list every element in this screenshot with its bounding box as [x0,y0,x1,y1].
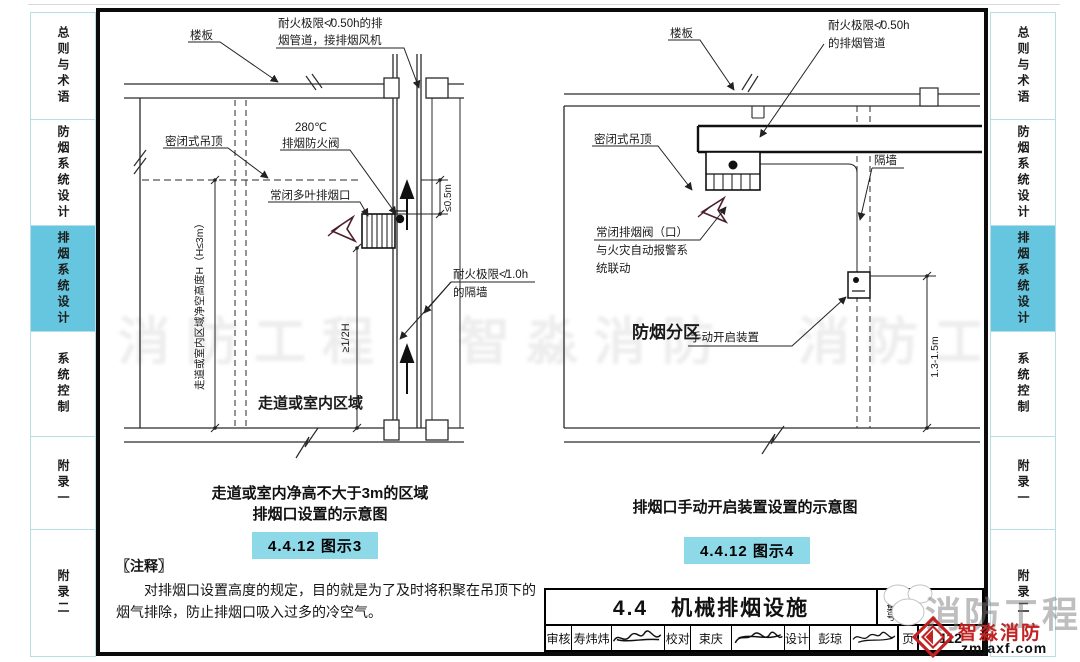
label-corridor-area: 走道或室内区域 [258,394,363,412]
manual-opening-device [848,272,870,298]
dimension-lines [870,272,936,432]
atlas-number-label: 图集号 [876,590,902,624]
figure-badge-4: 4.4.12 图示4 [684,537,810,564]
sidebar-item-system-control[interactable]: 系统控制 [30,332,96,437]
sidebar-item-label: 附录二 [57,569,69,617]
sidebar-item-label: 排烟系统设计 [57,231,69,327]
designer-signature [851,626,898,650]
label-floor-slab: 楼板 [670,26,693,40]
label-duct-note-1: 耐火极限≮0.50h的排 [278,16,383,30]
sidebar-item-label: 防烟系统设计 [57,125,69,221]
dim-half-height: ≥1/2H [340,323,352,352]
title-block: 4.4 机械排烟设施 图集号 审核 寿炜炜 校对 束庆 设计 彭琼 页 112 [544,588,984,652]
diagram-manual-device: 楼板 耐火极限≮0.50h 的排烟管道 密闭式吊顶 常闭排烟阀（口） 与火灾自动… [552,14,984,484]
watermark-site-url: zmjaxf.com [961,640,1047,656]
diagram-corridor-vent: 楼板 耐火极限≮0.50h的排 烟管道，接排烟风机 密闭式吊顶 280℃ 排烟防… [110,14,540,484]
caption-left-line1: 走道或室内净高不大于3m的区域 [140,483,500,504]
label-sealed-ceiling: 密闭式吊顶 [594,132,652,146]
sidebar-item-label: 附录一 [1017,459,1029,507]
sidebar-item-label: 总则与术语 [57,26,69,106]
dim-clear-height: 走道或室内区域净空高度H（H≤3m） [193,218,206,390]
label-partition-wall: 隔墙 [874,153,897,167]
sidebar-item-label: 附录二 [1017,569,1029,617]
caption-left-line2: 排烟口设置的示意图 [140,504,500,525]
sidebar-item-label: 总则与术语 [1017,26,1029,106]
sidebar-item-smoke-exhaust[interactable]: 排烟系统设计 [30,226,96,332]
checker-name: 束庆 [691,626,731,650]
notes-body: 对排烟口设置高度的规定，目的就是为了及时将积聚在吊顶下的烟气排除，防止排烟口吸入… [116,579,546,624]
section-title: 4.4 机械排烟设施 [546,590,876,624]
smoke-vent-assembly [362,211,406,248]
control-wire [760,164,857,272]
structure-lines [124,54,464,442]
sidebar-right-item-system-control[interactable]: 系统控制 [990,332,1056,437]
smoke-valve-assembly [706,152,760,190]
sidebar-item-appendix-1[interactable]: 附录一 [30,437,96,530]
sidebar-item-general[interactable]: 总则与术语 [30,12,96,120]
signature-scribble [851,629,897,647]
label-duct-note-2: 的排烟管道 [828,36,886,50]
sidebar-right: 总则与术语 防烟系统设计 排烟系统设计 系统控制 附录一 附录二 [990,12,1056,657]
smoke-flow-symbol [698,198,726,222]
notes-header: 〖注释〗 [116,556,546,576]
sidebar-right-item-smoke-proof[interactable]: 防烟系统设计 [990,120,1056,226]
title-block-bottom-row: 审核 寿炜炜 校对 束庆 设计 彭琼 页 112 [546,626,982,650]
label-valve-note-3: 统联动 [596,261,631,275]
label-duct-note-1: 耐火极限≮0.50h [828,18,910,32]
dim-device-height: 1.3-1.5m [929,336,941,378]
page-label: 页 [898,626,917,650]
label-valve-note-2: 与火灾自动报警系 [596,243,688,257]
dimension-lines [211,176,448,432]
caption-right: 排烟口手动开启装置设置的示意图 [560,497,930,518]
atlas-number-label-text: 图集号 [886,594,895,621]
label-floor-slab: 楼板 [190,28,213,42]
valve-actuator-symbol [729,161,738,170]
reviewer-signature [612,626,665,650]
atlas-page: 总则与术语 防烟系统设计 排烟系统设计 系统控制 附录一 附录二 总则与术语 防… [0,0,1080,662]
designer-label: 设计 [785,626,811,650]
smoke-flow-symbol [328,217,355,241]
label-valve-note-1: 常闭排烟阀（口） [596,225,688,239]
dim-top-offset: ≤0.5m [443,184,454,212]
sidebar-right-item-appendix-1[interactable]: 附录一 [990,437,1056,530]
label-multi-leaf-vent: 常闭多叶排烟口 [270,188,351,202]
sidebar-item-appendix-2[interactable]: 附录二 [30,530,96,657]
label-fire-damper: 排烟防火阀 [282,136,340,150]
signature-scribble [612,629,664,647]
sidebar-item-label: 附录一 [57,459,69,507]
partition-wall-dashed [857,106,870,428]
signature-scribble [732,629,784,647]
figure-badge-3: 4.4.12 图示3 [252,532,378,559]
sidebar-item-label: 排烟系统设计 [1017,231,1029,327]
label-wall-note-1: 耐火极限≮1.0h [453,267,528,281]
fire-damper-symbol [396,215,404,223]
sidebar-left: 总则与术语 防烟系统设计 排烟系统设计 系统控制 附录一 附录二 [30,12,96,657]
notes-section: 〖注释〗 对排烟口设置高度的规定，目的就是为了及时将积聚在吊顶下的烟气排除，防止… [116,556,546,624]
caption-right-line1: 排烟口手动开启装置设置的示意图 [560,497,930,518]
beam-section [920,88,938,106]
label-280c: 280℃ [295,122,327,134]
sidebar-item-label: 系统控制 [57,352,69,416]
label-duct-note-2: 烟管道，接排烟风机 [278,33,382,47]
reviewer-name: 寿炜炜 [572,626,612,650]
sidebar-item-label: 系统控制 [1017,352,1029,416]
sidebar-right-item-smoke-exhaust[interactable]: 排烟系统设计 [990,226,1056,332]
page-edge-line [28,4,1060,5]
sidebar-item-smoke-proof[interactable]: 防烟系统设计 [30,120,96,226]
label-sealed-ceiling: 密闭式吊顶 [165,134,223,148]
sidebar-right-item-general[interactable]: 总则与术语 [990,12,1056,120]
checker-label: 校对 [665,626,691,650]
label-wall-note-2: 的隔墙 [453,285,488,299]
sidebar-item-label: 防烟系统设计 [1017,125,1029,221]
horizontal-duct [698,125,982,152]
caption-left: 走道或室内净高不大于3m的区域 排烟口设置的示意图 [140,483,500,525]
title-block-top-row: 4.4 机械排烟设施 图集号 [546,590,982,626]
designer-name: 彭琼 [810,626,850,650]
reviewer-label: 审核 [546,626,572,650]
label-manual-device: 手动开启装置 [690,330,759,344]
checker-signature [732,626,785,650]
